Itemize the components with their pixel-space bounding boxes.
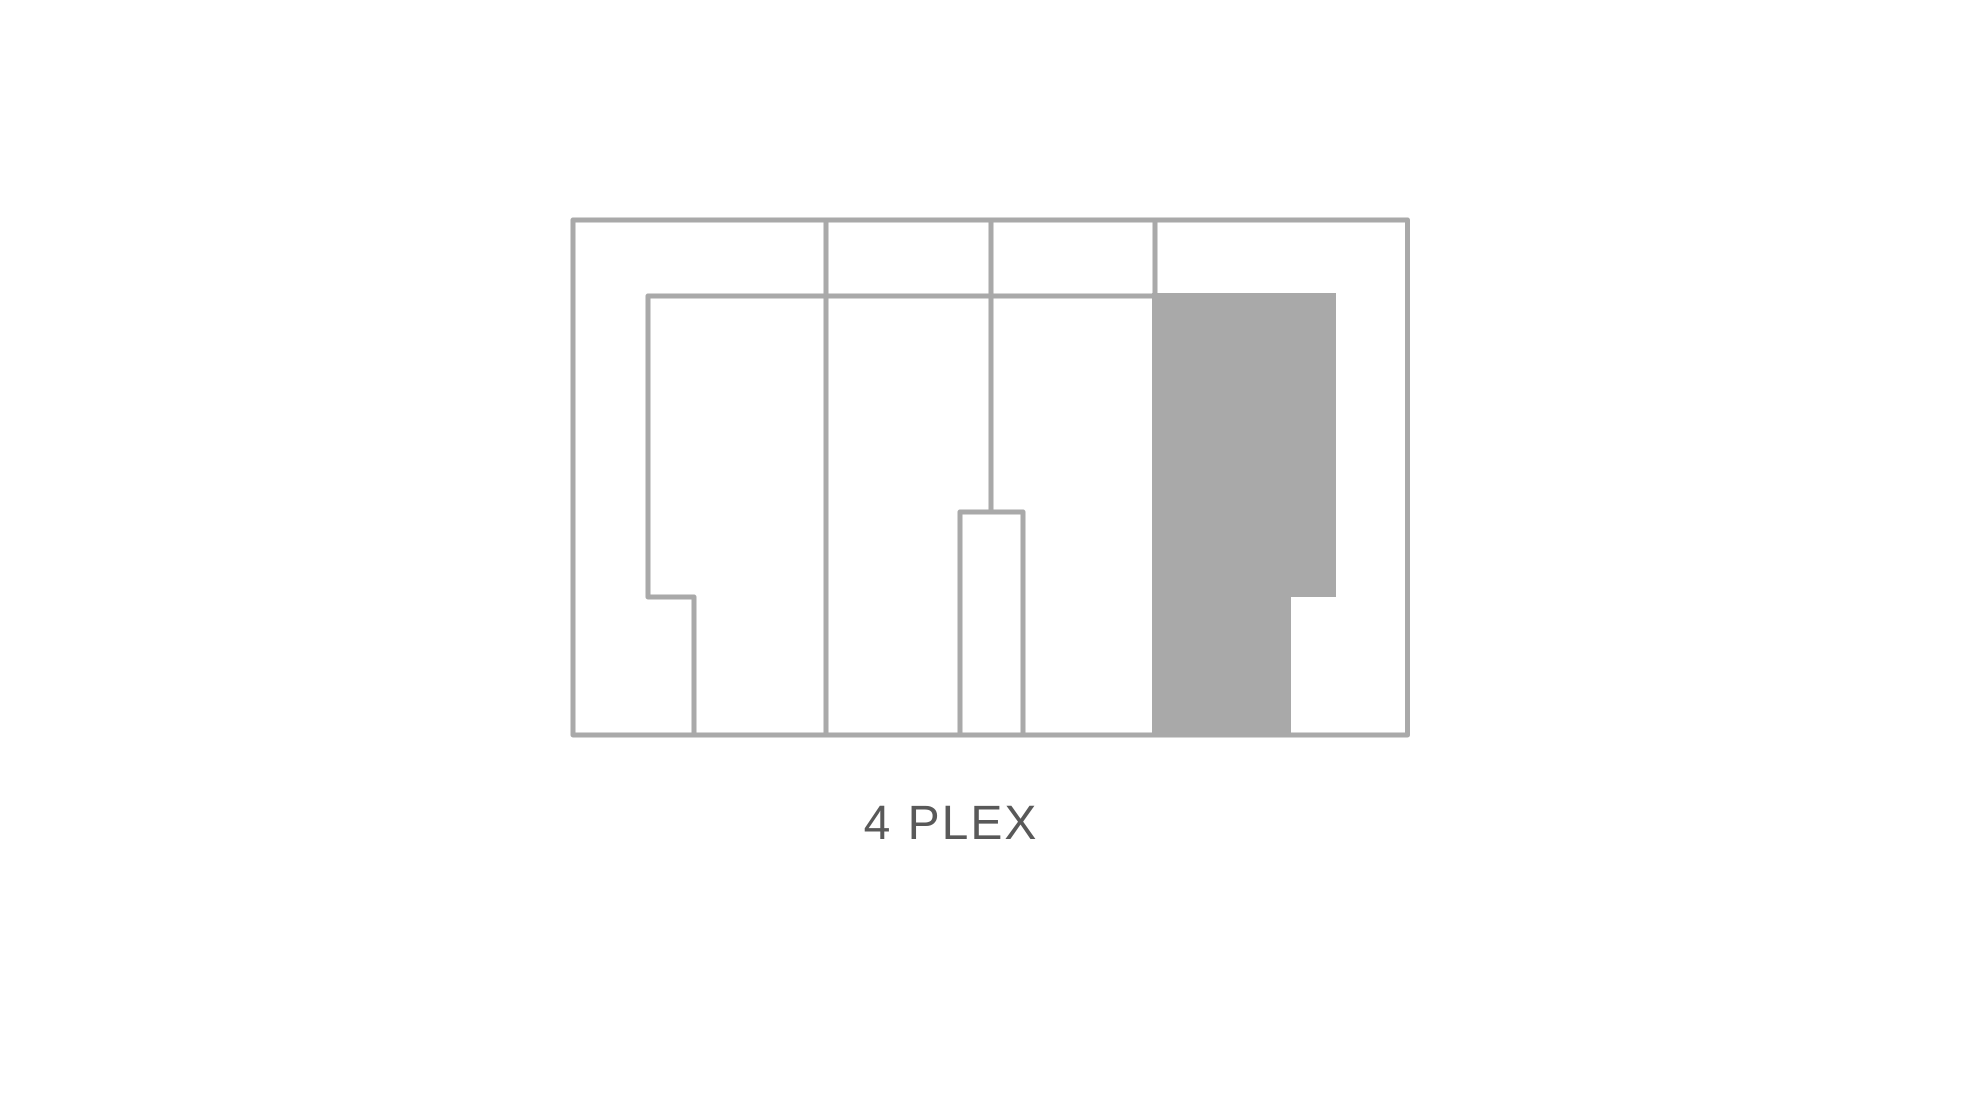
canvas: 4 PLEX	[0, 0, 1980, 1115]
shaded-unit-fill	[1152, 293, 1336, 737]
floor-plan-svg	[0, 0, 1980, 1115]
entry-recess	[960, 512, 1023, 735]
unit1-inner-wall	[648, 296, 1155, 737]
plan-title: 4 PLEX	[864, 800, 1039, 848]
